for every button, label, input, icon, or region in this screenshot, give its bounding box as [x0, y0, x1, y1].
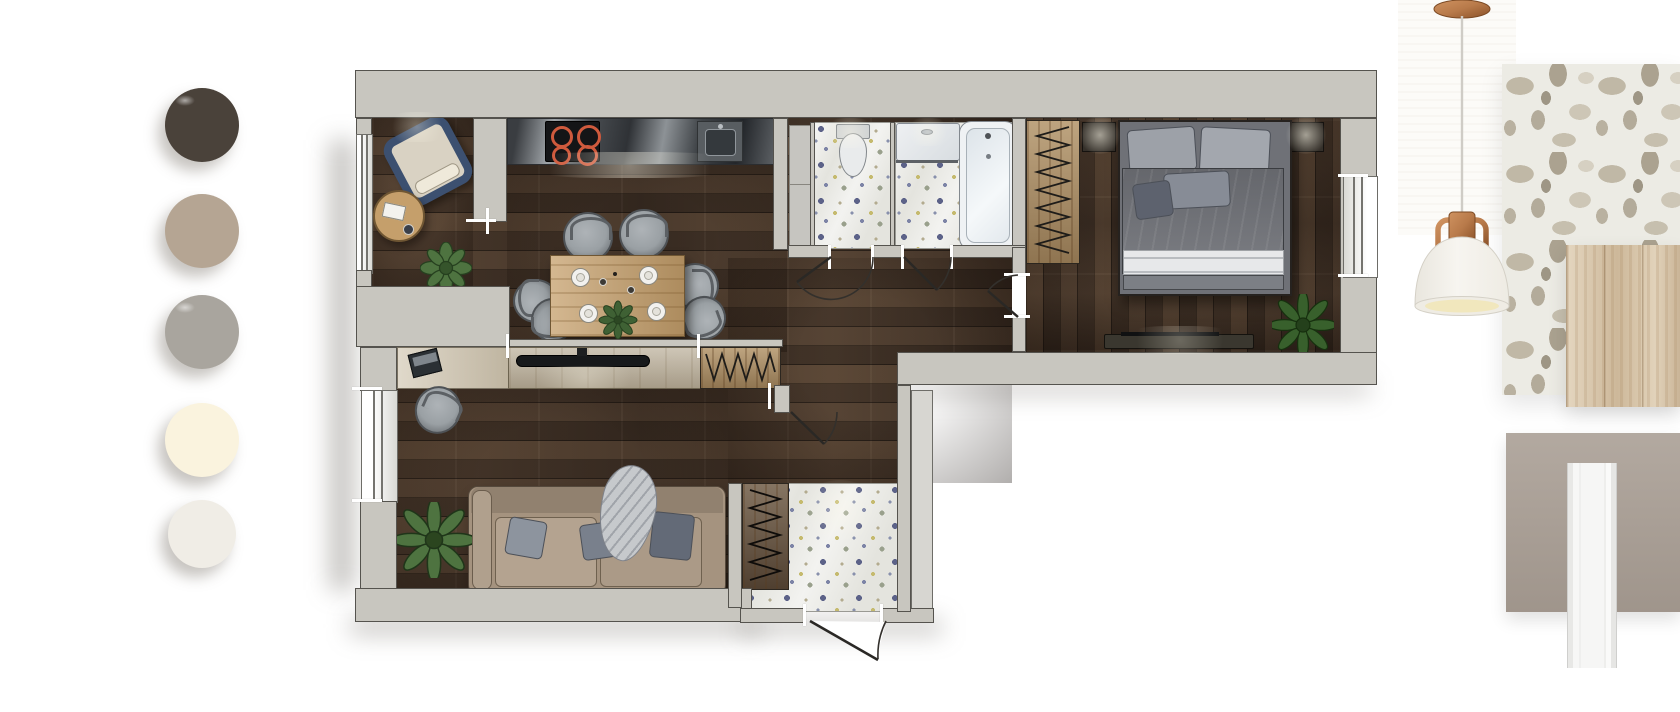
material-samples	[1390, 0, 1680, 712]
plate	[571, 268, 590, 287]
wall-wc-left	[810, 122, 815, 247]
tv-console	[508, 347, 702, 389]
double-bed	[1118, 120, 1292, 296]
plant-leaves	[598, 300, 638, 340]
dimension-tick	[828, 245, 831, 269]
glass	[599, 278, 607, 286]
round-side-table	[373, 190, 425, 242]
dimension-tick	[1338, 274, 1368, 277]
plant-leaves	[1272, 294, 1334, 356]
burner	[551, 126, 573, 148]
dimension-tick	[901, 245, 904, 269]
hanger-symbols	[1027, 121, 1079, 263]
oak-wood-sample	[1566, 245, 1680, 407]
dimension-tick	[506, 334, 509, 358]
utility-shaft	[911, 390, 933, 610]
wall-entry-bottom-left	[740, 608, 805, 623]
plate-ring	[644, 271, 654, 281]
chair-back	[570, 217, 613, 241]
glass	[627, 286, 635, 294]
tv-stand	[577, 348, 587, 356]
cabinet-divider	[790, 184, 812, 185]
wall-left-low	[360, 501, 397, 590]
wall-nook-kitchen	[473, 118, 507, 222]
wall-bottom-living	[355, 588, 752, 622]
plate	[639, 266, 658, 285]
lamp-rim	[1415, 297, 1509, 316]
living-room-plant	[396, 502, 472, 582]
bedroom-plant	[1272, 294, 1334, 354]
bed-accent-pillow	[1163, 170, 1231, 209]
cooktop	[545, 121, 600, 162]
entry-closet	[742, 483, 789, 590]
sofa-back	[471, 487, 723, 513]
plan-shadow-left	[330, 140, 354, 590]
sofa-pillow	[649, 511, 696, 561]
dimension-tick	[803, 604, 806, 626]
window-mullion	[373, 391, 375, 502]
laptop-screen	[412, 352, 437, 367]
sofa	[468, 486, 726, 595]
wall-bottom-bedroom	[897, 352, 1377, 385]
lamp-photo-background	[1398, 0, 1516, 235]
chair-back	[626, 214, 669, 238]
open-book	[382, 202, 407, 221]
plate-ring	[576, 273, 586, 283]
bedroom-tv	[1121, 332, 1219, 336]
wall-top	[355, 70, 1377, 118]
dimension-tick	[352, 499, 382, 502]
plant-leaves	[396, 502, 472, 578]
mug	[403, 224, 414, 235]
shower-tray	[896, 123, 960, 161]
bed-foot	[1123, 275, 1284, 290]
bedroom-right-window	[1343, 176, 1378, 278]
candle	[613, 272, 617, 276]
plate-ring	[652, 307, 662, 317]
faucet	[718, 124, 723, 129]
tv	[516, 355, 650, 367]
burner	[552, 146, 571, 165]
wall-bedroom-left-b	[1012, 315, 1026, 352]
window-mullion	[1361, 177, 1363, 277]
wall-nook-desk-block	[356, 286, 510, 347]
window-mullion	[381, 391, 383, 502]
window-mullion	[361, 135, 363, 273]
dimension-tick	[352, 387, 382, 390]
living-left-window	[361, 390, 398, 503]
sofa-arm-left	[472, 490, 492, 590]
wall-bedroom-left-a	[1012, 247, 1026, 275]
bathtub	[959, 121, 1017, 250]
plate-ring	[584, 309, 594, 319]
wall-wc-bath	[890, 122, 895, 247]
hanger-symbols	[743, 484, 788, 589]
nightstand-right	[1290, 122, 1324, 152]
burner	[577, 145, 598, 166]
nightstand-left	[1082, 122, 1116, 152]
dimension-tick	[871, 245, 874, 269]
bedroom-media-console	[1104, 334, 1254, 349]
bed-runner	[1123, 250, 1284, 275]
wall-living-right	[728, 483, 742, 608]
wall-bath-right	[1012, 118, 1026, 247]
plate	[579, 304, 598, 323]
centerpiece-plant	[598, 300, 638, 340]
door-trim-sample	[1567, 463, 1617, 668]
bathtub-faucet	[986, 154, 991, 159]
shower-glass	[896, 160, 958, 163]
shower-handle	[921, 129, 933, 135]
dimension-tick	[466, 219, 496, 222]
dimension-tick	[1004, 315, 1030, 318]
wall-bath-bottom-b	[871, 245, 902, 258]
moodboard-page: { "board": { "kind": "interior-design-mo…	[0, 0, 1680, 712]
dimension-tick	[880, 604, 883, 626]
window-mullion	[1353, 177, 1355, 277]
wall-bath-bottom-a	[788, 245, 830, 258]
wall-kitchen-right	[773, 118, 788, 250]
bathtub-drain	[985, 133, 991, 139]
bathtub-basin	[966, 128, 1010, 243]
wall-entry-right	[897, 385, 911, 612]
sofa-pillow	[504, 516, 548, 560]
lamp-inner	[1425, 300, 1499, 313]
dimension-tick	[950, 245, 953, 269]
dimension-tick	[697, 334, 700, 358]
dimension-tick	[1338, 174, 1368, 177]
dimension-tick	[768, 383, 771, 409]
dining-chair	[619, 209, 669, 259]
bed-accent-pillow	[1132, 180, 1175, 221]
bedroom-hanger-wardrobe	[1026, 120, 1080, 264]
lamp-shade	[1415, 237, 1509, 306]
hanger-symbols	[701, 348, 780, 388]
wall-left-mid	[360, 347, 397, 391]
window-mullion	[366, 135, 368, 273]
wall-hall-stub	[774, 385, 790, 413]
plate	[647, 302, 666, 321]
kitchen-sink	[697, 121, 743, 162]
nook-left-window	[356, 134, 373, 274]
sink-basin	[705, 129, 736, 156]
dimension-tick	[1004, 273, 1030, 276]
dimension-tick	[486, 208, 489, 234]
